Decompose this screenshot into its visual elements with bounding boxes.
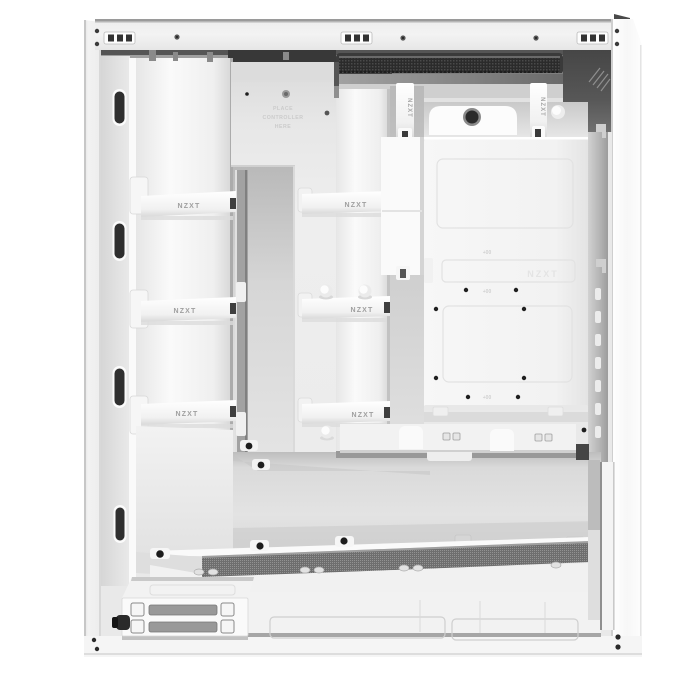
svg-text:NZXT: NZXT bbox=[350, 307, 373, 314]
svg-text:NZXT: NZXT bbox=[175, 411, 198, 418]
svg-text:NZXT: NZXT bbox=[406, 98, 412, 118]
svg-text:+00: +00 bbox=[483, 395, 492, 401]
svg-text:NZXT: NZXT bbox=[177, 203, 200, 210]
svg-text:NZXT: NZXT bbox=[351, 412, 374, 419]
svg-text:CONTROLLER: CONTROLLER bbox=[262, 115, 303, 121]
svg-text:NZXT: NZXT bbox=[539, 97, 545, 117]
svg-text:NZXT: NZXT bbox=[344, 202, 367, 209]
svg-text:+00: +00 bbox=[483, 250, 492, 256]
svg-text:+00: +00 bbox=[483, 289, 492, 295]
svg-text:PLACE: PLACE bbox=[273, 106, 293, 112]
svg-text:HERE: HERE bbox=[275, 124, 291, 130]
svg-text:NZXT: NZXT bbox=[173, 308, 196, 315]
svg-text:NZXT: NZXT bbox=[527, 269, 559, 279]
